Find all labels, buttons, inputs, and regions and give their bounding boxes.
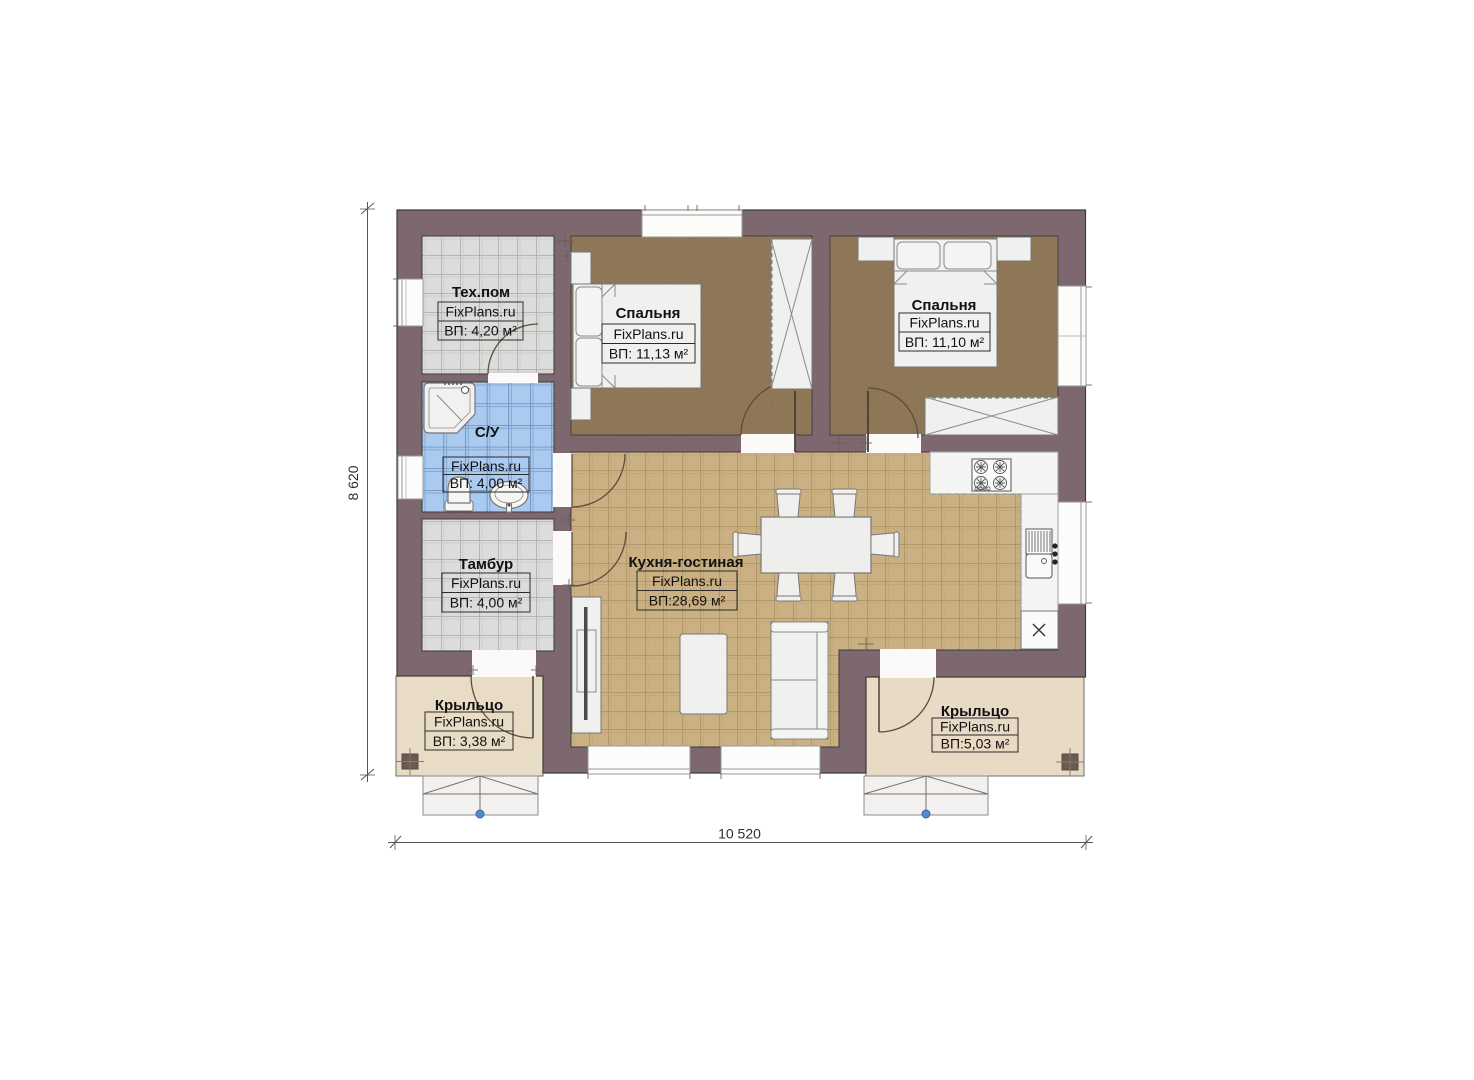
- svg-text:FixPlans.ru: FixPlans.ru: [434, 714, 504, 730]
- svg-text:Спальня: Спальня: [616, 305, 681, 322]
- svg-text:10 520: 10 520: [718, 826, 761, 842]
- svg-text:FixPlans.ru: FixPlans.ru: [451, 458, 521, 474]
- svg-text:FixPlans.ru: FixPlans.ru: [909, 315, 979, 331]
- svg-text:FixPlans.ru: FixPlans.ru: [613, 326, 683, 342]
- svg-text:ВП: 4,20 м²: ВП: 4,20 м²: [444, 323, 517, 339]
- svg-text:FixPlans.ru: FixPlans.ru: [451, 575, 521, 591]
- svg-text:Крыльцо: Крыльцо: [941, 703, 1009, 720]
- svg-text:ВП: 11,13 м²: ВП: 11,13 м²: [609, 346, 689, 362]
- svg-text:Кухня-гостиная: Кухня-гостиная: [629, 554, 744, 571]
- svg-text:ВП:28,69 м²: ВП:28,69 м²: [649, 593, 726, 609]
- svg-text:ВП: 3,38 м²: ВП: 3,38 м²: [433, 733, 506, 749]
- svg-text:Спальня: Спальня: [912, 297, 977, 314]
- svg-text:ВП:5,03 м²: ВП:5,03 м²: [941, 736, 1010, 752]
- svg-text:ВП: 4,00 м²: ВП: 4,00 м²: [450, 595, 523, 611]
- svg-text:Тамбур: Тамбур: [459, 556, 513, 573]
- svg-text:8 620: 8 620: [345, 465, 361, 500]
- svg-text:Крыльцо: Крыльцо: [435, 697, 503, 714]
- svg-text:FixPlans.ru: FixPlans.ru: [652, 573, 722, 589]
- svg-text:Тех.пом: Тех.пом: [452, 284, 510, 301]
- svg-text:ВП: 4,00 м²: ВП: 4,00 м²: [450, 475, 523, 491]
- svg-text:ВП: 11,10 м²: ВП: 11,10 м²: [905, 334, 985, 350]
- svg-text:FixPlans.ru: FixPlans.ru: [940, 719, 1010, 735]
- svg-text:FixPlans.ru: FixPlans.ru: [445, 304, 515, 320]
- svg-text:С/У: С/У: [475, 424, 500, 441]
